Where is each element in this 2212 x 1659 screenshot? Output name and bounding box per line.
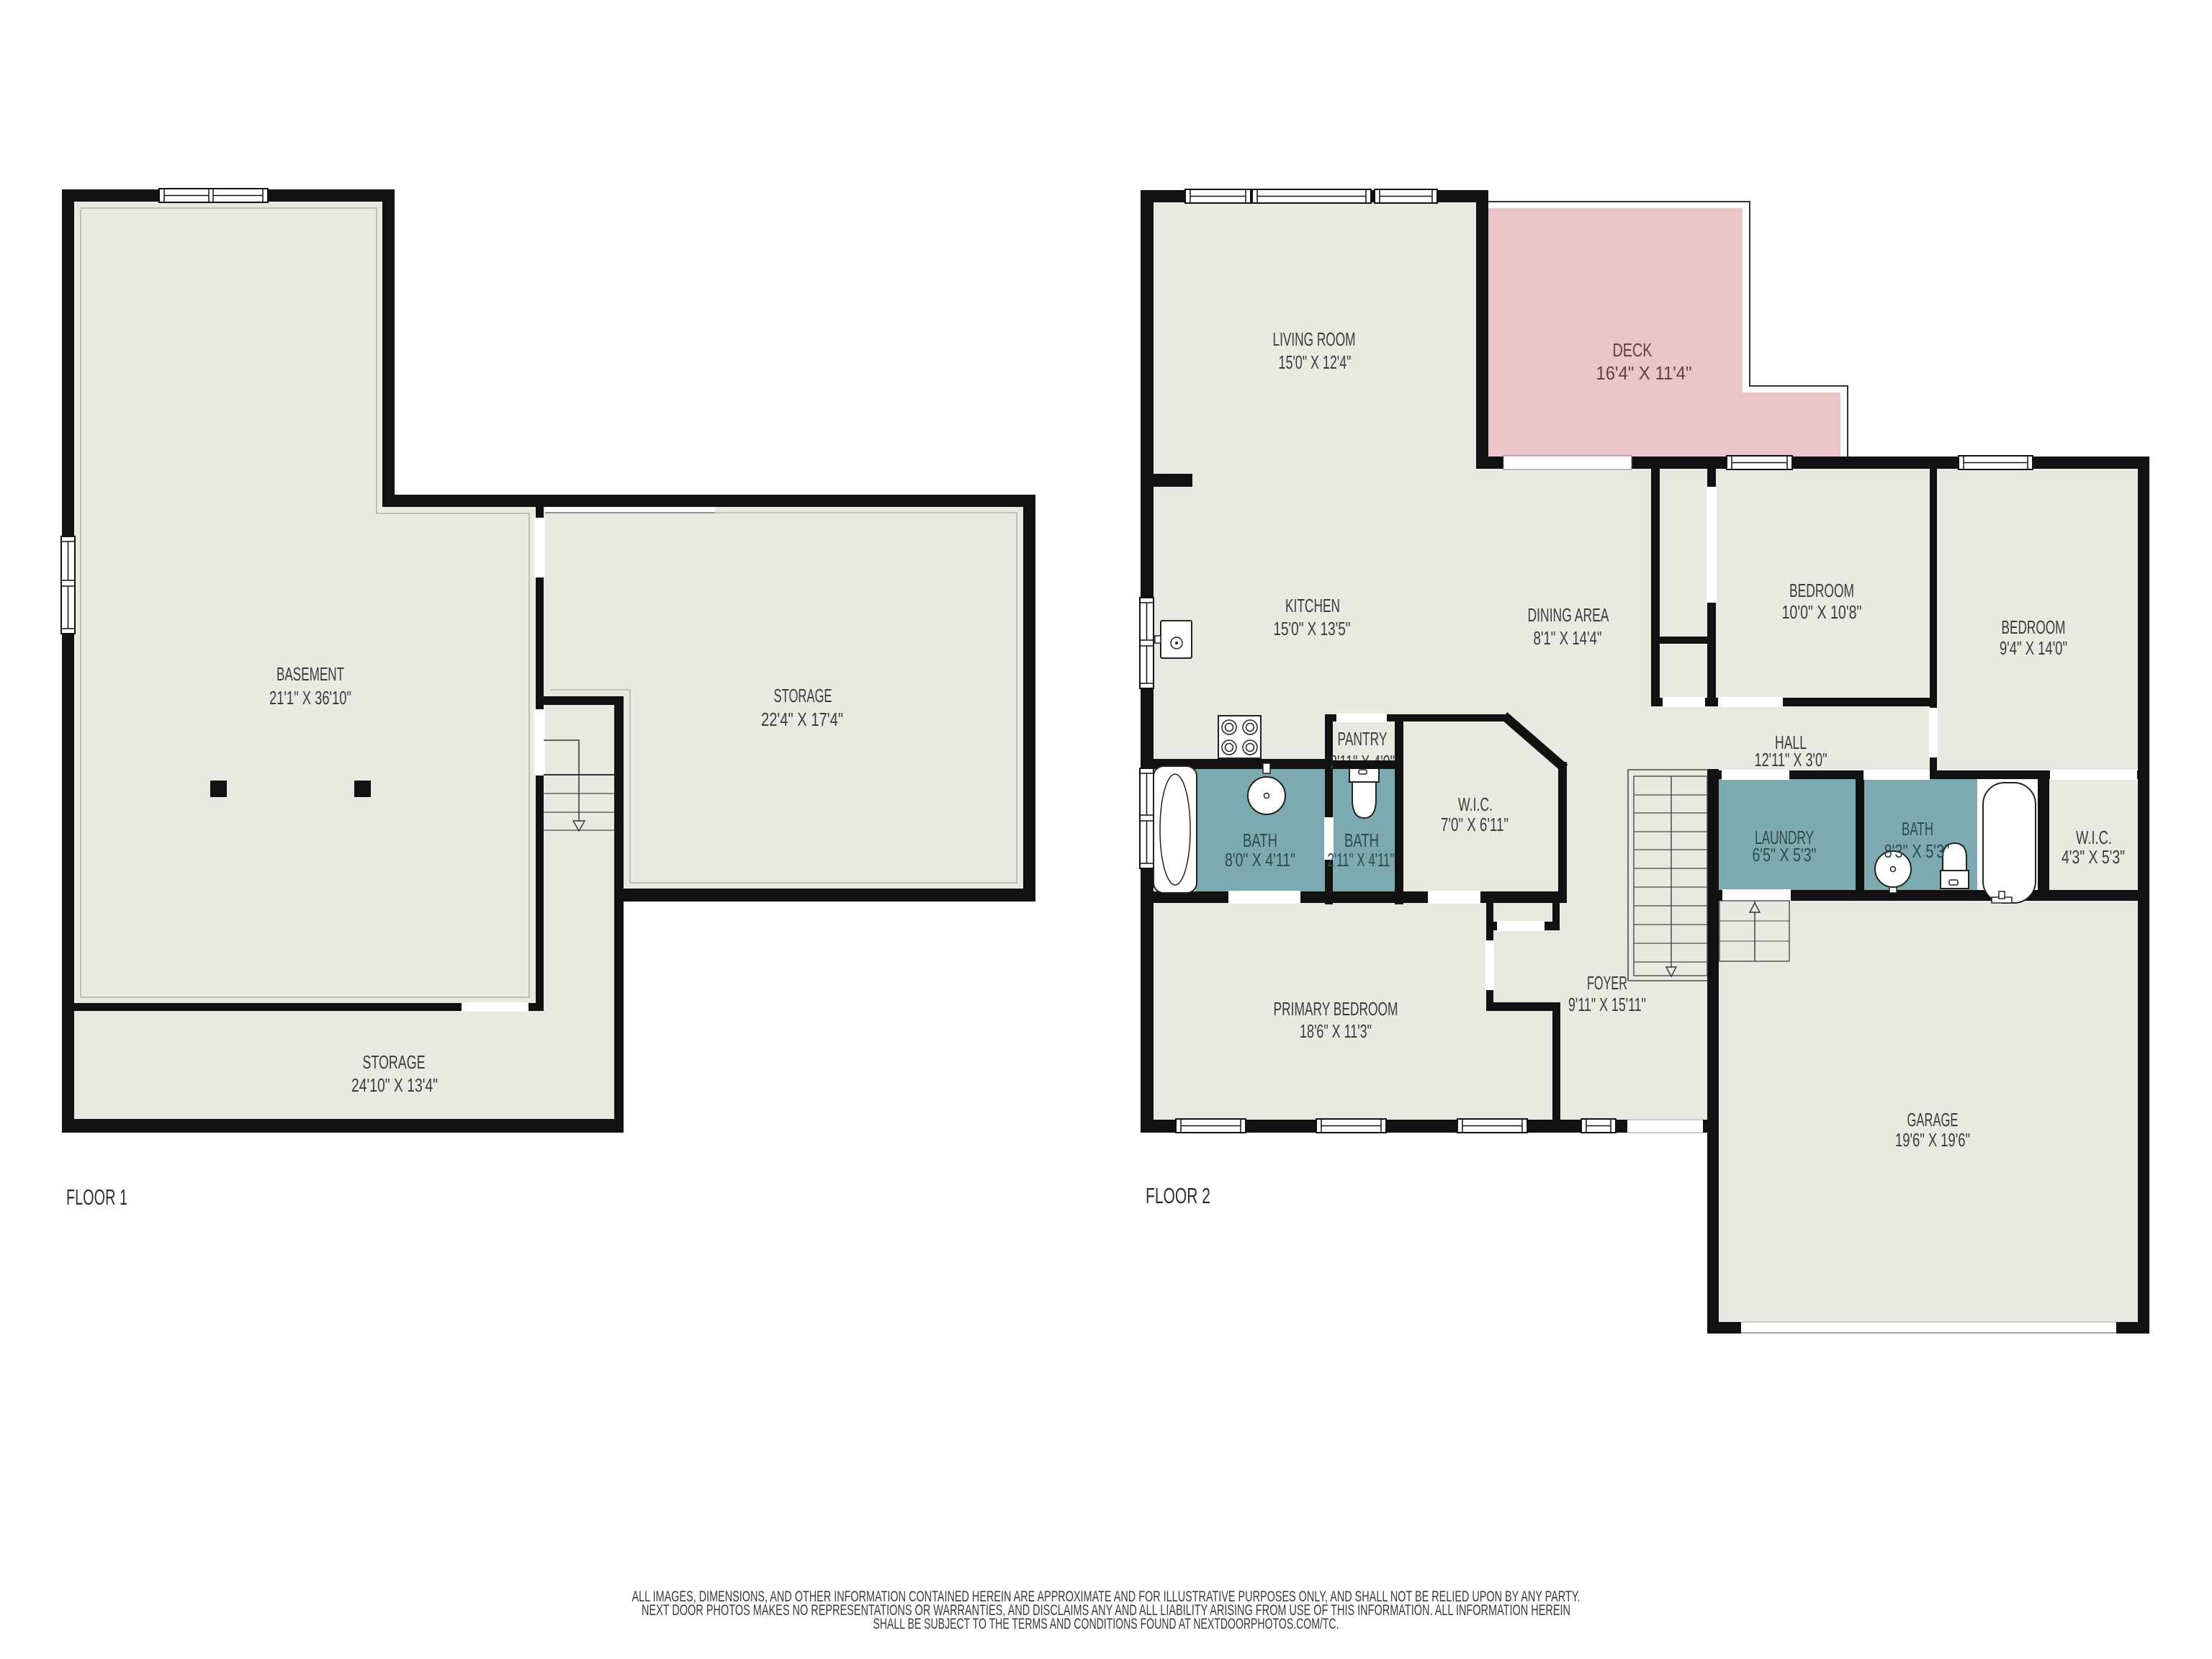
- svg-text:BATH: BATH: [1243, 829, 1277, 851]
- svg-text:16'4" X 11'4": 16'4" X 11'4": [1596, 362, 1692, 384]
- svg-text:18'6" X 11'3": 18'6" X 11'3": [1300, 1020, 1372, 1042]
- svg-text:LIVING ROOM: LIVING ROOM: [1273, 328, 1356, 350]
- svg-text:7'0" X 6'11": 7'0" X 6'11": [1441, 814, 1509, 835]
- svg-text:DECK: DECK: [1613, 339, 1653, 361]
- svg-text:9'4" X 14'0": 9'4" X 14'0": [2000, 637, 2067, 659]
- svg-text:PRIMARY BEDROOM: PRIMARY BEDROOM: [1274, 998, 1398, 1020]
- svg-text:19'6" X 19'6": 19'6" X 19'6": [1895, 1129, 1970, 1151]
- svg-text:24'10" X 13'4": 24'10" X 13'4": [351, 1074, 438, 1096]
- svg-text:BEDROOM: BEDROOM: [2002, 616, 2066, 638]
- svg-text:12'11" X 3'0": 12'11" X 3'0": [1755, 749, 1827, 770]
- svg-text:8'3" X 5'3": 8'3" X 5'3": [1884, 840, 1950, 862]
- svg-text:FLOOR 2: FLOOR 2: [1146, 1183, 1210, 1208]
- svg-text:8'1" X 14'4": 8'1" X 14'4": [1534, 627, 1602, 649]
- svg-text:GARAGE: GARAGE: [1907, 1109, 1959, 1130]
- svg-text:22'4" X 17'4": 22'4" X 17'4": [761, 709, 843, 730]
- svg-text:15'0" X 13'5": 15'0" X 13'5": [1274, 618, 1351, 639]
- svg-text:BATH: BATH: [1902, 818, 1933, 840]
- svg-text:FOYER: FOYER: [1587, 972, 1627, 994]
- svg-text:FLOOR 1: FLOOR 1: [66, 1184, 127, 1210]
- svg-text:PANTRY: PANTRY: [1338, 728, 1388, 750]
- svg-text:BEDROOM: BEDROOM: [1789, 580, 1854, 601]
- svg-text:4'3" X 5'3": 4'3" X 5'3": [2062, 846, 2125, 868]
- svg-text:W.I.C.: W.I.C.: [2076, 827, 2112, 848]
- svg-text:DINING AREA: DINING AREA: [1528, 604, 1609, 626]
- svg-text:10'0" X 10'8": 10'0" X 10'8": [1782, 601, 1862, 623]
- svg-text:STORAGE: STORAGE: [774, 685, 832, 706]
- svg-text:6'5" X 5'3": 6'5" X 5'3": [1753, 844, 1817, 866]
- svg-text:8'0" X 4'11": 8'0" X 4'11": [1225, 849, 1295, 871]
- svg-text:21'1" X 36'10": 21'1" X 36'10": [269, 687, 351, 709]
- svg-text:BATH: BATH: [1344, 829, 1379, 851]
- svg-text:2'11" X 4'11": 2'11" X 4'11": [1328, 849, 1395, 871]
- svg-text:W.I.C.: W.I.C.: [1458, 793, 1493, 815]
- svg-text:SHALL BE SUBJECT TO THE TERMS: SHALL BE SUBJECT TO THE TERMS AND CONDIT…: [873, 1616, 1339, 1632]
- svg-text:9'11" X 15'11": 9'11" X 15'11": [1568, 994, 1646, 1015]
- svg-text:BASEMENT: BASEMENT: [276, 663, 344, 685]
- svg-text:KITCHEN: KITCHEN: [1285, 595, 1340, 616]
- svg-text:STORAGE: STORAGE: [363, 1051, 426, 1073]
- svg-text:15'0" X 12'4": 15'0" X 12'4": [1279, 351, 1352, 373]
